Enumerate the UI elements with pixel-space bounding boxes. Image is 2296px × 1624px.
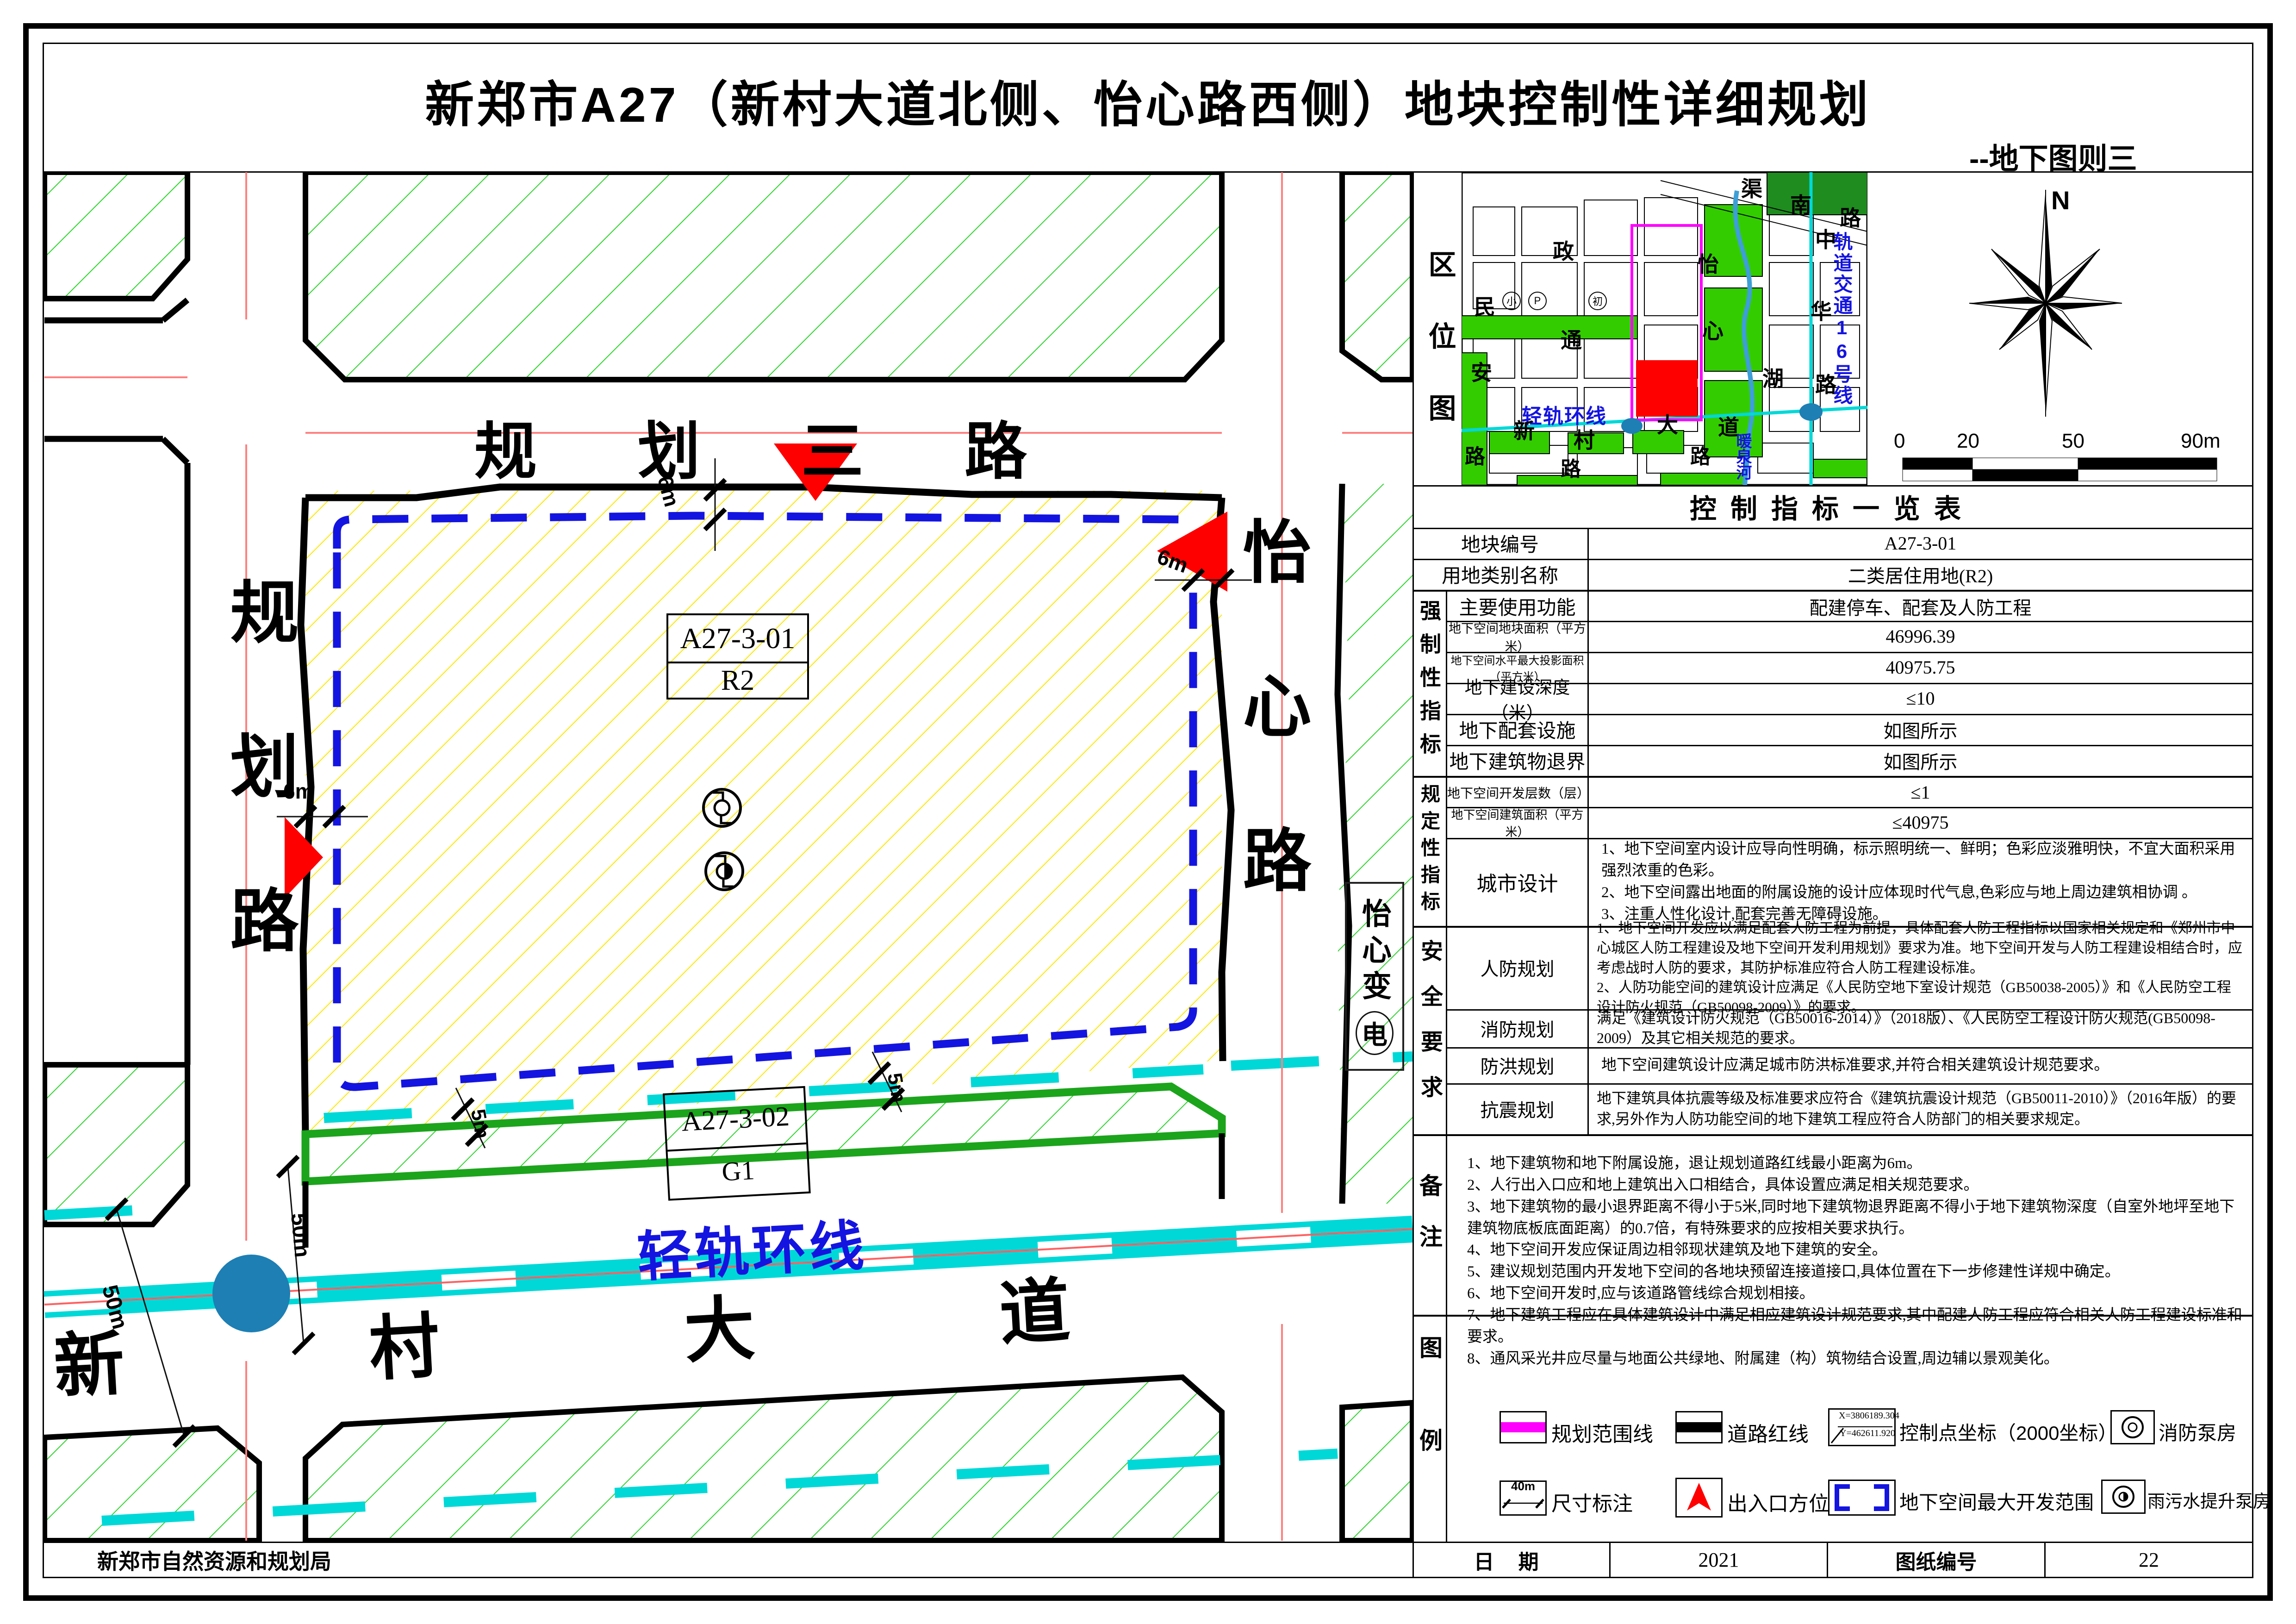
legend-sewagepump-symbol — [2101, 1480, 2146, 1514]
group-safety: 安全要求 — [1412, 926, 1446, 1134]
notes-text: 1、地下建筑物和地下附属设施，退让规划道路红线最小距离为6m。 2、人行出入口应… — [1467, 1153, 2245, 1370]
legend-maxrange-label: 地下空间最大开发范围 — [1899, 1487, 2094, 1515]
locmap-title: 区位图 — [1420, 250, 1460, 465]
group-regulatory: 规定性指标 — [1412, 776, 1446, 926]
outer-border-bottom — [23, 1595, 2273, 1601]
locmap-xincun-1: 新 — [1513, 420, 1535, 442]
dim-5m-a: 5m — [466, 1107, 494, 1140]
locmap-qunanlu-1: 渠 — [1741, 178, 1762, 200]
parcel-g1-code: A27-3-02 — [665, 1088, 806, 1150]
row-text-xiaofang: 满足《建筑设计防火规范（GB50016-2014）》（2018版）、《人民防空工… — [1597, 1011, 2245, 1045]
parcel-g1-labelbox: A27-3-02 G1 — [663, 1086, 811, 1201]
locmap-hua: 华 — [1811, 301, 1832, 322]
row-value-usetype: 二类居住用地(R2) — [1589, 559, 2252, 590]
block-south — [305, 1377, 1222, 1541]
group-legend: 图例 — [1412, 1315, 1446, 1542]
row-text-fanghong: 地下空间建筑设计应满足城市防洪标准要求,并符合相关建筑设计规范要求。 — [1601, 1049, 2245, 1081]
row-label-kangzhen: 抗震规划 — [1447, 1083, 1587, 1134]
row-label-facility: 地下配套设施 — [1447, 714, 1587, 745]
row-label-function: 主要使用功能 — [1447, 592, 1587, 621]
locmap-an: 安 — [1471, 362, 1492, 383]
locmap-qunanlu-2: 南 — [1790, 194, 1811, 216]
row-label-design: 城市设计 — [1447, 838, 1587, 926]
road-west-label: 规划路 — [208, 576, 308, 1039]
locmap-xincun-2: 村 — [1574, 430, 1595, 451]
page-title: 新郑市A27（新村大道北侧、怡心路西侧）地块控制性详细规划 — [0, 65, 2296, 136]
locmap-yi: 怡 — [1698, 254, 1719, 275]
group-mandatory: 强制性指标 — [1412, 590, 1446, 776]
footer-date-value: 2021 — [1611, 1542, 1827, 1578]
dim-6m-left: 6m — [283, 779, 314, 804]
row-label-fanghong: 防洪规划 — [1447, 1047, 1587, 1083]
row-label-xiaofang: 消防规划 — [1447, 1009, 1587, 1047]
legend-redline-label: 道路红线 — [1727, 1418, 1809, 1447]
substation-box: 怡心变 电 — [1345, 882, 1404, 1071]
row-text-kangzhen: 地下建筑具体抗震等级及标准要求应符合《建筑抗震设计规范（GB50011-2010… — [1597, 1085, 2245, 1132]
legend-ctrlpoint-symbol: X=3806189.304 Y=462611.920 — [1828, 1408, 1896, 1446]
row-value-floors: ≤1 — [1589, 778, 2252, 807]
legend-dimension-label: 尺寸标注 — [1551, 1487, 1633, 1517]
rail-label: 轻轨环线 — [635, 1201, 868, 1292]
block-nw — [44, 172, 187, 299]
parcel-main-code: A27-3-01 — [668, 615, 807, 662]
compass-icon — [1958, 190, 2134, 421]
locmap-river-label: 暖泉河 — [1735, 433, 1750, 480]
legend-dimension-symbol: 40m — [1500, 1480, 1547, 1516]
locmap-icon-middleschool: 初 — [1588, 292, 1607, 310]
table-title: 控制指标一览表 — [1412, 485, 2252, 528]
row-text-renfang: 1、地下空间开发应以满足配套人防工程为前提，具体配套人防工程指标以国家相关规定和… — [1597, 929, 2245, 1007]
agency-name: 新郑市自然资源和规划局 — [97, 1542, 1393, 1578]
road-north-label: 规划三路 — [474, 400, 1128, 491]
parcel-main-labelbox: A27-3-01 R2 — [666, 613, 809, 700]
row-value-depth: ≤10 — [1589, 683, 2252, 714]
locmap-xincun-3: 大 — [1657, 414, 1678, 436]
group-notes: 备注 — [1412, 1134, 1446, 1315]
block-east — [1338, 484, 1412, 1204]
scale-50: 50 — [2062, 430, 2084, 453]
block-ne — [1342, 172, 1412, 380]
scale-90m: 90m — [2181, 430, 2221, 453]
locmap-qunanlu-3: 路 — [1840, 207, 1861, 229]
dim-50m-b: 50m — [286, 1212, 315, 1259]
legend-entrance-symbol — [1675, 1478, 1723, 1518]
legend-boundary-swatch — [1500, 1411, 1547, 1443]
locmap-min: 民 — [1474, 296, 1495, 318]
outer-border-top — [23, 23, 2273, 29]
scale-0: 0 — [1894, 430, 1905, 453]
outer-border-left — [23, 23, 29, 1601]
row-value-gfa: ≤40975 — [1589, 807, 2252, 838]
legend-firepump-label: 消防泵房 — [2159, 1418, 2236, 1446]
locmap-lu-b3: 路 — [1690, 447, 1711, 467]
locmap-hu: 湖 — [1762, 368, 1784, 389]
locmap-zheng: 政 — [1553, 241, 1574, 262]
locmap-tong: 通 — [1561, 330, 1582, 351]
substation-label: 怡心变 — [1353, 898, 1396, 1006]
legend-sewagepump-label: 雨污水提升泵房 — [2147, 1487, 2271, 1512]
locmap-icon-school: 小 — [1502, 292, 1521, 310]
locmap-lu-b1: 路 — [1465, 447, 1485, 467]
legend-firepump-symbol — [2110, 1410, 2155, 1444]
block-se — [1342, 1403, 1412, 1541]
footer-sheet-label: 图纸编号 — [1828, 1542, 2044, 1578]
inner-border-right — [2252, 43, 2253, 1578]
row-value-function: 配建停车、配套及人防工程 — [1589, 592, 2252, 621]
locmap-rail16: 轨道交通16号线 — [1832, 231, 1851, 406]
parcel-main — [305, 491, 1222, 1137]
row-label-renfang: 人防规划 — [1447, 926, 1587, 1009]
row-value-setback: 如图所示 — [1589, 745, 2252, 776]
scale-20: 20 — [1957, 430, 1979, 453]
locmap-icon-parking: P — [1528, 292, 1547, 310]
row-label-setback: 地下建筑物退界 — [1447, 745, 1587, 776]
legend-redline-swatch — [1675, 1411, 1723, 1443]
footer-sheet-value: 22 — [2046, 1542, 2252, 1578]
legend-ctrlpoint-label: 控制点坐标（2000坐标） — [1899, 1418, 2117, 1446]
legend-boundary-label: 规划范围线 — [1551, 1418, 1653, 1447]
parcel-main-use: R2 — [668, 663, 807, 698]
row-value-area: 46996.39 — [1589, 621, 2252, 652]
legend-maxrange-symbol — [1828, 1480, 1896, 1516]
inner-border-top — [43, 43, 2253, 44]
road-east-label: 怡心路 — [1221, 516, 1320, 979]
footer-date-label: 日 期 — [1412, 1542, 1609, 1578]
row-label-depth: 地下建设深度（米） — [1447, 683, 1587, 714]
locmap-lu-b2: 路 — [1561, 459, 1581, 480]
outer-border-right — [2267, 23, 2273, 1601]
row-text-design: 1、地下空间室内设计应导向性明确，标示照明统一、鲜明；色彩应淡雅明快，不宜大面积… — [1601, 843, 2240, 921]
row-value-facility: 如图所示 — [1589, 714, 2252, 745]
legend-entrance-label: 出入口方位 — [1727, 1487, 1829, 1517]
block-west-mid — [44, 1065, 187, 1224]
block-north — [305, 172, 1222, 380]
row-label-area: 地下空间地块面积（平方米） — [1447, 621, 1587, 652]
row-label-floors: 地下空间开发层数（层） — [1447, 778, 1587, 807]
row-value-code: A27-3-01 — [1589, 528, 2252, 559]
row-label-code: 地块编号 — [1412, 528, 1587, 559]
row-value-projection: 40975.75 — [1589, 652, 2252, 683]
row-label-gfa: 地下空间建筑面积（平方米） — [1447, 807, 1587, 838]
locmap-xin: 心 — [1702, 320, 1724, 342]
row-label-usetype: 用地类别名称 — [1412, 559, 1587, 590]
substation-dian: 电 — [1356, 1011, 1394, 1055]
block-sw — [44, 1428, 259, 1541]
parcel-g1-use: G1 — [668, 1144, 809, 1197]
scale-bar — [1902, 457, 2218, 482]
dim-5m-b: 5m — [883, 1071, 910, 1104]
